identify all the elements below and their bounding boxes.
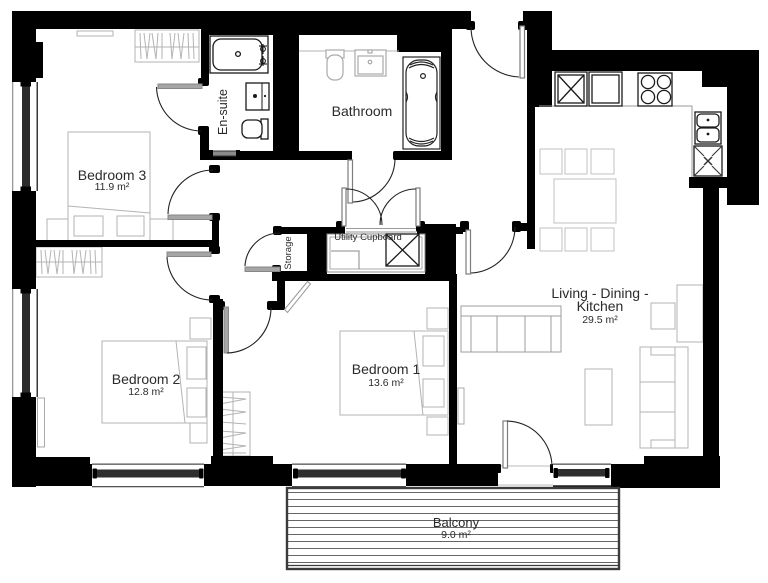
svg-text:13.6 m²: 13.6 m² xyxy=(368,377,404,389)
svg-text:Storage: Storage xyxy=(283,236,294,269)
svg-text:En-suite: En-suite xyxy=(216,89,230,135)
svg-text:9.0 m²: 9.0 m² xyxy=(441,529,471,541)
svg-text:Bathroom: Bathroom xyxy=(332,103,393,119)
svg-text:Kitchen: Kitchen xyxy=(577,298,624,314)
svg-text:Bedroom 1: Bedroom 1 xyxy=(352,361,421,377)
svg-text:Balcony: Balcony xyxy=(433,515,480,530)
svg-text:Bedroom 2: Bedroom 2 xyxy=(112,371,181,387)
svg-text:11.9 m²: 11.9 m² xyxy=(95,181,130,193)
svg-text:29.5 m²: 29.5 m² xyxy=(582,314,618,326)
svg-text:12.8 m²: 12.8 m² xyxy=(128,386,164,398)
svg-text:Utility Cupboard: Utility Cupboard xyxy=(334,232,402,243)
